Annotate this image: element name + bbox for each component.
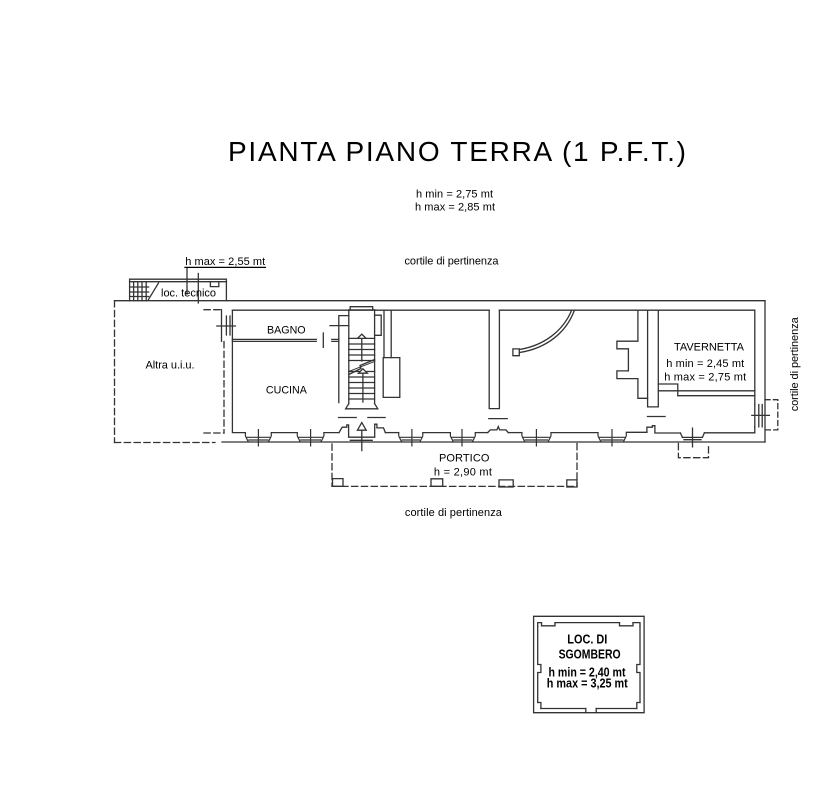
svg-text:CUCINA: CUCINA	[266, 384, 308, 396]
svg-text:h max = 2,85 mt: h max = 2,85 mt	[415, 201, 495, 213]
svg-text:h max = 3,25 mt: h max = 3,25 mt	[547, 677, 629, 691]
svg-text:BAGNO: BAGNO	[267, 325, 306, 337]
svg-text:SGOMBERO: SGOMBERO	[559, 647, 621, 662]
svg-text:cortile di pertinenza: cortile di pertinenza	[789, 316, 801, 411]
svg-text:PIANTA PIANO TERRA (1 P.F.T.): PIANTA PIANO TERRA (1 P.F.T.)	[228, 136, 686, 167]
svg-text:h min = 2,45 mt: h min = 2,45 mt	[666, 358, 744, 370]
svg-text:TAVERNETTA: TAVERNETTA	[674, 341, 745, 353]
svg-text:cortile di pertinenza: cortile di pertinenza	[405, 256, 500, 268]
svg-text:cortile di pertinenza: cortile di pertinenza	[405, 507, 503, 519]
svg-text:PORTICO: PORTICO	[439, 453, 490, 465]
svg-text:LOC. DI: LOC. DI	[567, 632, 607, 647]
svg-text:h min = 2,75 mt: h min = 2,75 mt	[416, 189, 493, 201]
svg-text:h max = 2,55 mt: h max = 2,55 mt	[185, 256, 265, 268]
svg-text:loc. tecnico: loc. tecnico	[161, 287, 216, 299]
svg-text:h max = 2,75 mt: h max = 2,75 mt	[664, 372, 746, 384]
svg-text:Altra u.i.u.: Altra u.i.u.	[146, 359, 195, 371]
svg-text:h = 2,90 mt: h = 2,90 mt	[434, 467, 492, 479]
